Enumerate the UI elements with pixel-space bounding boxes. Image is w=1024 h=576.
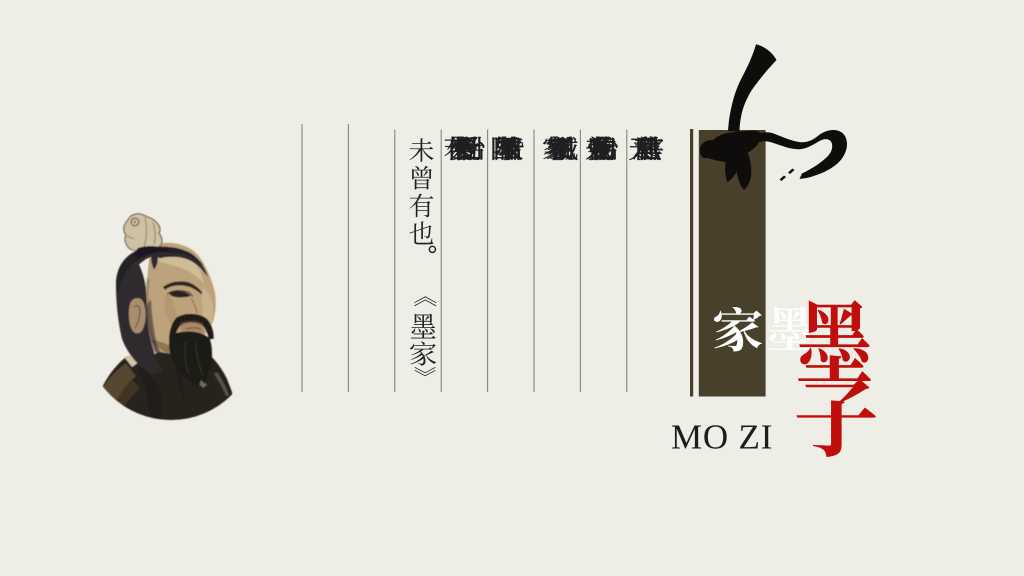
svg-text:MO ZI: MO ZI	[671, 418, 773, 457]
